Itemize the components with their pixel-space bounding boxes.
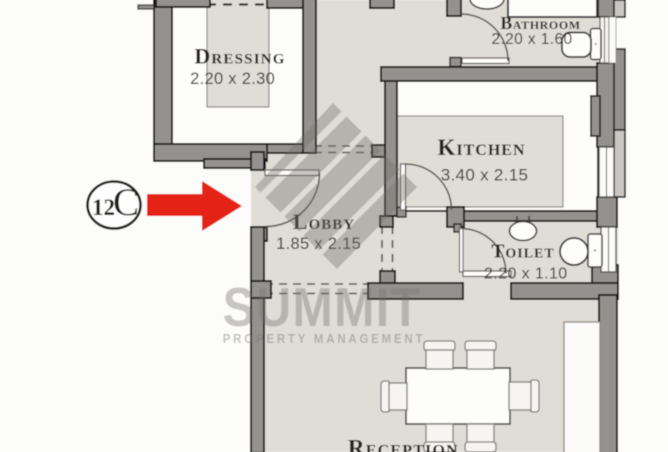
svg-text:PROPERTY MANAGEMENT: PROPERTY MANAGEMENT	[223, 331, 426, 346]
svg-text:Reception: Reception	[348, 436, 459, 452]
svg-text:Kitchen: Kitchen	[437, 135, 525, 160]
svg-text:Bathroom: Bathroom	[500, 13, 580, 33]
svg-text:2.20 x 1.10: 2.20 x 1.10	[484, 266, 568, 283]
svg-text:2.20 x 1.60: 2.20 x 1.60	[491, 31, 572, 48]
svg-text:Toilet: Toilet	[491, 242, 554, 263]
svg-text:Dressing: Dressing	[194, 44, 285, 69]
svg-text:2.20 x 2.30: 2.20 x 2.30	[190, 70, 275, 88]
svg-text:3.40 x 2.15: 3.40 x 2.15	[441, 166, 528, 185]
svg-text:SUMMIT: SUMMIT	[223, 276, 422, 338]
